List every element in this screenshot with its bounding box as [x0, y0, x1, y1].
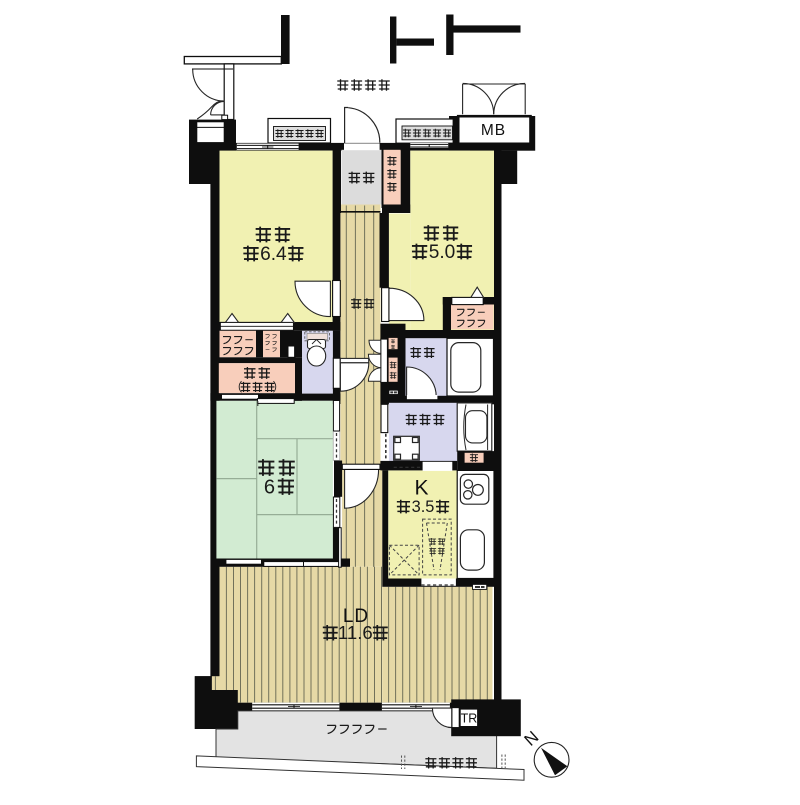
svg-text:5.0: 5.0: [429, 242, 456, 263]
svg-text:6.4: 6.4: [260, 244, 287, 265]
svg-text:3.5: 3.5: [412, 498, 435, 516]
svg-text:11.6: 11.6: [338, 622, 373, 643]
svg-text:MB: MB: [481, 122, 506, 139]
svg-text:6: 6: [264, 476, 275, 498]
svg-text:K: K: [414, 477, 428, 500]
svg-text:）: ）: [273, 380, 285, 394]
svg-text:TR: TR: [461, 712, 478, 726]
